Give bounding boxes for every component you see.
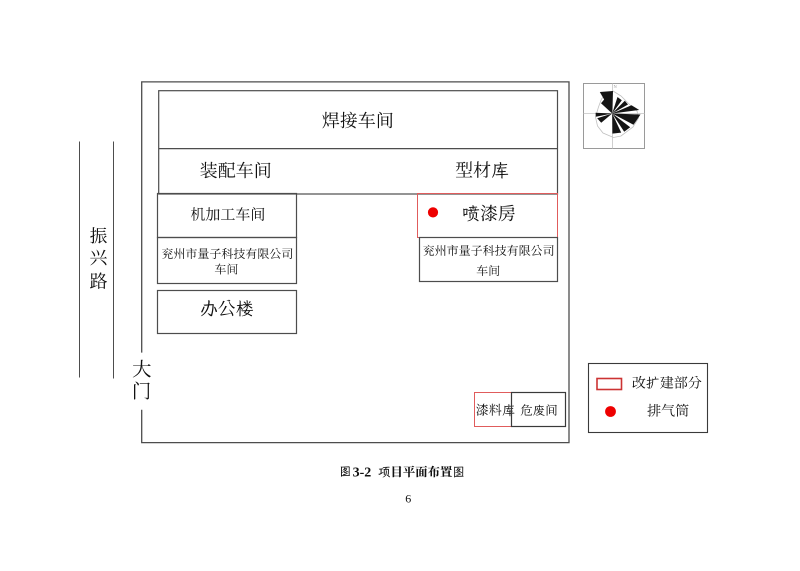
svg-text:6: 6 (405, 492, 411, 506)
svg-text:3-2: 3-2 (353, 465, 372, 480)
